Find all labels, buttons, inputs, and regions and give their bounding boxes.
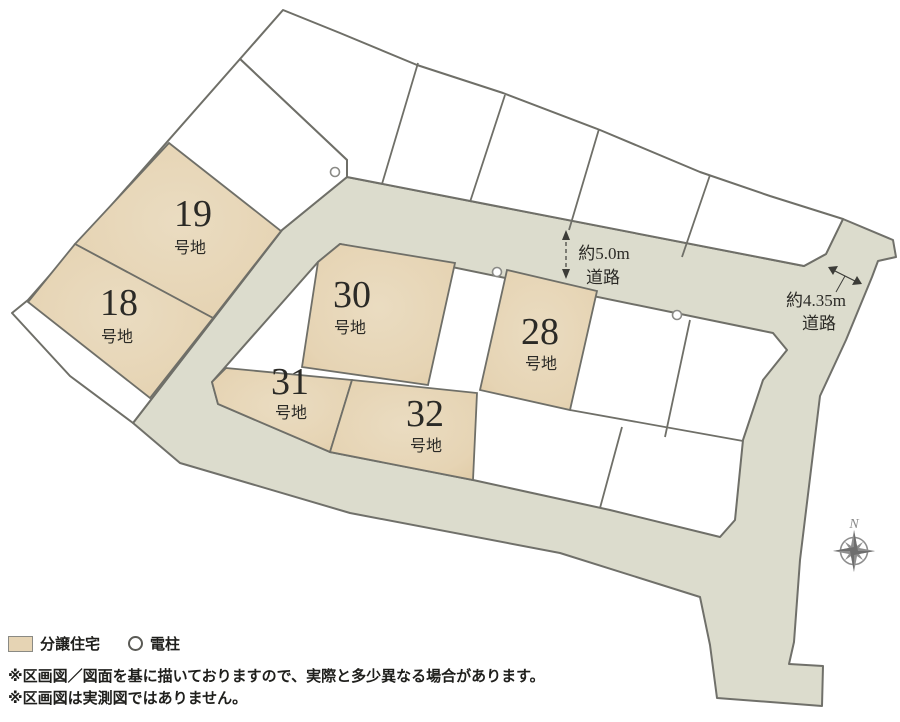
footnote-line-2: ※区画図は実測図ではありません。: [8, 688, 545, 710]
site-map-svg: 19 号地 18 号地 30 号地 31 号地 32 号地 28 号地 約5.0…: [0, 0, 900, 717]
plot-32-suffix: 号地: [410, 437, 442, 455]
utility-pole-icon: [331, 168, 340, 177]
compass-center-dot: [852, 549, 856, 553]
plot-30-number: 30: [333, 274, 371, 316]
legend-lot-label: 分譲住宅: [40, 633, 100, 654]
utility-pole-icon: [673, 311, 682, 320]
plot-28-number: 28: [521, 311, 559, 353]
plot-19-suffix: 号地: [174, 239, 206, 257]
footnote-line-1: ※区画図／図面を基に描いておりますので、実際と多少異なる場合があります。: [8, 666, 545, 688]
plot-map-figure: 19 号地 18 号地 30 号地 31 号地 32 号地 28 号地 約5.0…: [0, 0, 900, 717]
utility-pole-icon: [493, 268, 502, 277]
utility-pole-legend-icon: [128, 636, 143, 651]
plot-31-number: 31: [271, 361, 309, 403]
compass-rose: N: [833, 517, 875, 572]
plot-18-number: 18: [100, 282, 138, 324]
plot-18-suffix: 号地: [101, 328, 133, 346]
plot-28-suffix: 号地: [525, 355, 557, 373]
plot-30-shape: [302, 244, 455, 385]
map-legend: 分譲住宅 電柱: [8, 633, 180, 654]
map-footnotes: ※区画図／図面を基に描いておりますので、実際と多少異なる場合があります。 ※区画…: [8, 666, 545, 710]
compass-north-label: N: [848, 517, 859, 532]
plot-30-suffix: 号地: [334, 319, 366, 337]
road-5m-label-line2: 道路: [586, 268, 620, 287]
road-5m-label-line1: 約5.0m: [578, 244, 629, 263]
road-4-35m-label-line1: 約4.35m: [786, 291, 846, 310]
plot-19-number: 19: [174, 193, 212, 235]
road-4-35m-label-line2: 道路: [802, 314, 836, 333]
lot-swatch-icon: [8, 636, 33, 652]
plot-31-suffix: 号地: [275, 404, 307, 422]
plot-32-number: 32: [406, 393, 444, 435]
legend-pole-label: 電柱: [150, 633, 180, 654]
